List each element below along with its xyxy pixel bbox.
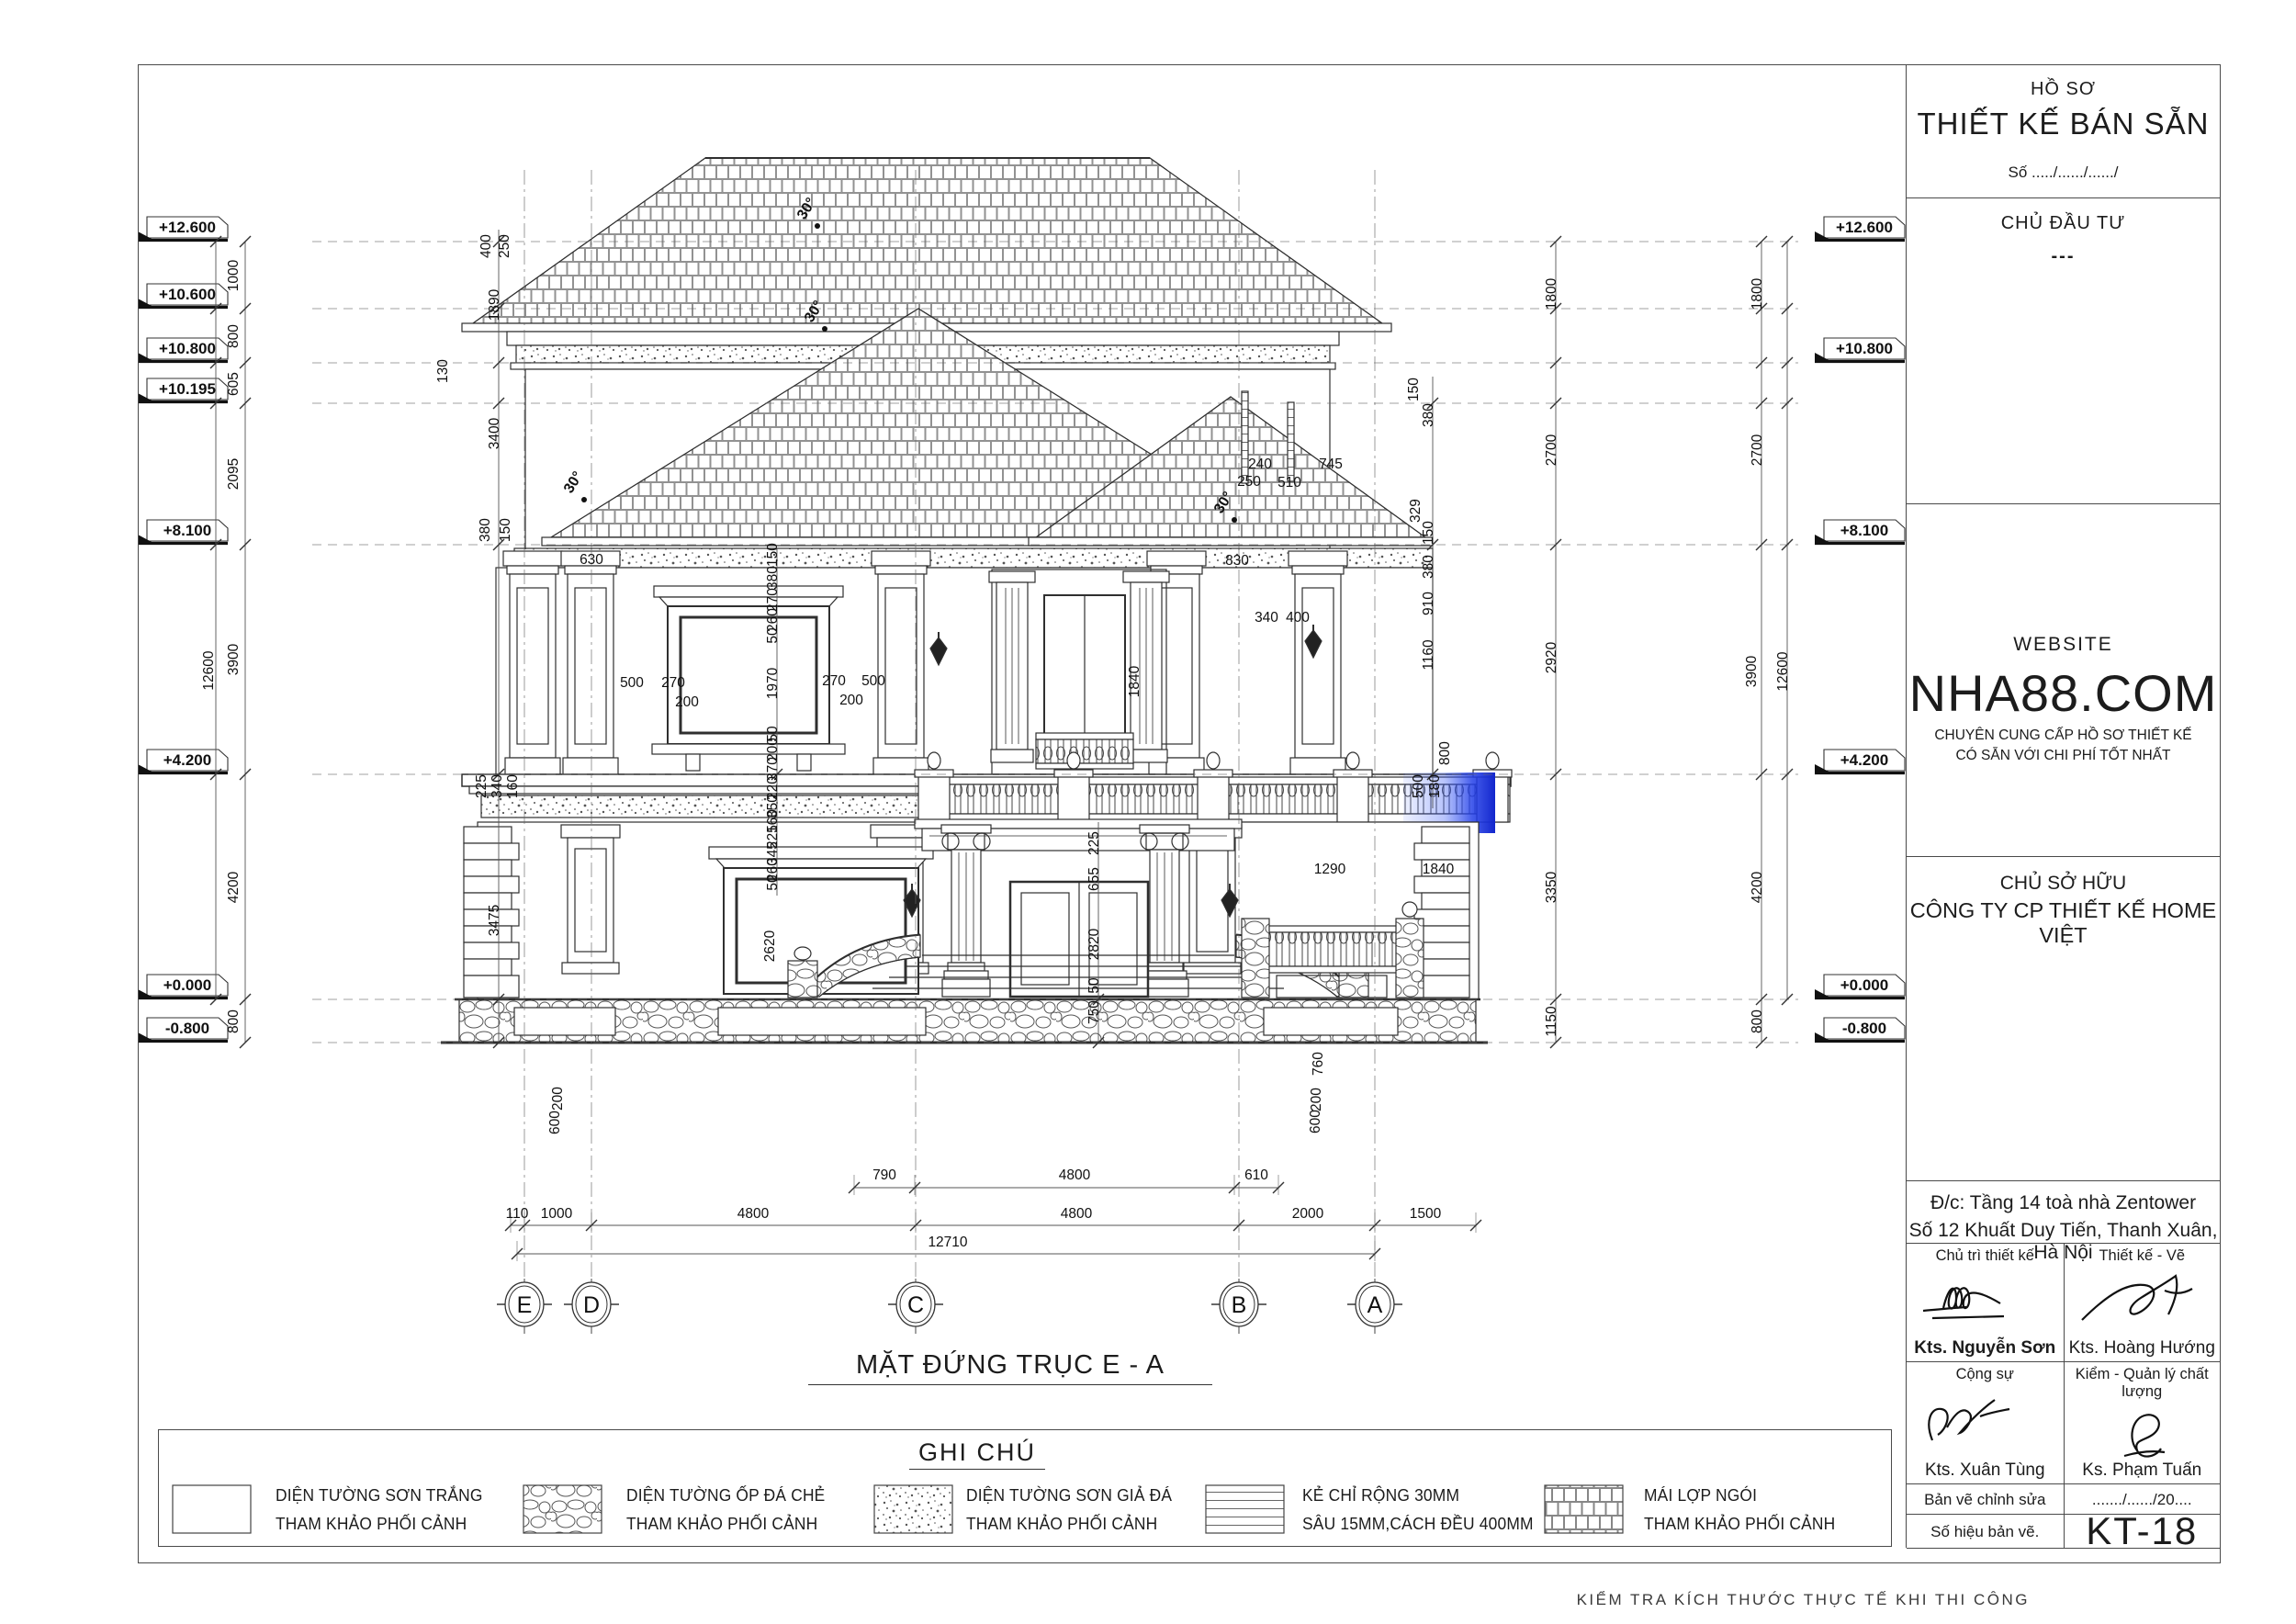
website-tagline-1: CHUYÊN CUNG CẤP HỒ SƠ THIẾT KẾ — [1907, 727, 2220, 744]
role-label: Thiết kế - Vẽ — [2065, 1244, 2221, 1265]
address-line-1: Đ/c: Tầng 14 toà nhà Zentower — [1907, 1192, 2220, 1214]
investor-value: --- — [1907, 246, 2220, 267]
staff-name: Kts. Hoàng Hướng — [2065, 1338, 2221, 1359]
drawing-title: MẶT ĐỨNG TRỤC E - A — [808, 1350, 1212, 1385]
signature — [1916, 1267, 2054, 1331]
role-label: Chủ trì thiết kế — [1907, 1244, 2064, 1265]
website-tagline-2: CÓ SẴN VỚI CHI PHÍ TỐT NHẤT — [1907, 748, 2220, 764]
title-block: HỒ SƠ THIẾT KẾ BÁN SẴN Số ...../....../.… — [1906, 64, 2220, 1548]
legend-item-label: DIỆN TƯỜNG ỐP ĐÁ CHẺTHAM KHẢO PHỐI CẢNH — [626, 1481, 825, 1538]
staff-cell-associate: Cộng sự Kts. Xuân Tùng — [1907, 1361, 2064, 1483]
legend-item-label: MÁI LỢP NGÓITHAM KHẢO PHỐI CẢNH — [1644, 1481, 1835, 1538]
signature — [1916, 1385, 2054, 1451]
owner-company: CÔNG TY CP THIẾT KẾ HOME VIỆT — [1907, 898, 2220, 948]
staff-cell-qa: Kiểm - Quản lý chất lượng Ks. Phạm Tuấn — [2064, 1361, 2221, 1483]
staff-name: Kts. Xuân Tùng — [1907, 1460, 2064, 1481]
legend-title: GHI CHÚ — [909, 1438, 1045, 1470]
drawing-sheet-page: { "title_block": { "section1": {"label":… — [0, 0, 2296, 1624]
staff-cell-lead: Chủ trì thiết kế Kts. Nguyễn Sơn — [1907, 1243, 2064, 1361]
staff-name: Ks. Phạm Tuấn — [2065, 1460, 2221, 1481]
staff-table: Chủ trì thiết kế Kts. Nguyễn Sơn Thiết k… — [1907, 1243, 2220, 1548]
dossier-title: THIẾT KẾ BÁN SẴN — [1907, 107, 2220, 141]
sheet-no-value: KT-18 — [2064, 1514, 2221, 1548]
legend-item-label: DIỆN TƯỜNG SƠN GIẢ ĐÁTHAM KHẢO PHỐI CẢNH — [966, 1481, 1172, 1538]
dossier-number: Số ...../....../....../ — [1907, 164, 2220, 182]
website-label: WEBSITE — [1907, 634, 2220, 656]
staff-name: Kts. Nguyễn Sơn — [1907, 1338, 2064, 1359]
signature — [2073, 1403, 2211, 1469]
role-label: Cộng sự — [1907, 1362, 2064, 1383]
staff-cell-designer: Thiết kế - Vẽ Kts. Hoàng Hướng — [2064, 1243, 2221, 1361]
website-domain[interactable]: NHA88.COM — [1907, 663, 2220, 723]
signature — [2073, 1267, 2211, 1331]
investor-label: CHỦ ĐẦU TƯ — [1907, 213, 2220, 234]
sheet-no-label-cell: Số hiệu bản vẽ. — [1907, 1514, 2064, 1548]
dossier-label: HỒ SƠ — [1907, 79, 2220, 100]
legend-item-label: DIỆN TƯỜNG SƠN TRẮNGTHAM KHẢO PHỐI CẢNH — [276, 1481, 483, 1538]
revision-label-cell: Bản vẽ chỉnh sửa — [1907, 1483, 2064, 1514]
owner-label: CHỦ SỞ HỮU — [1907, 873, 2220, 895]
role-label: Kiểm - Quản lý chất lượng — [2065, 1362, 2221, 1401]
footer-note: KIỂM TRA KÍCH THƯỚC THỰC TẾ KHI THI CÔNG — [1433, 1591, 2030, 1609]
legend-item-label: KẺ CHỈ RỘNG 30MMSÂU 15MM,CÁCH ĐỀU 400MM — [1302, 1481, 1534, 1538]
